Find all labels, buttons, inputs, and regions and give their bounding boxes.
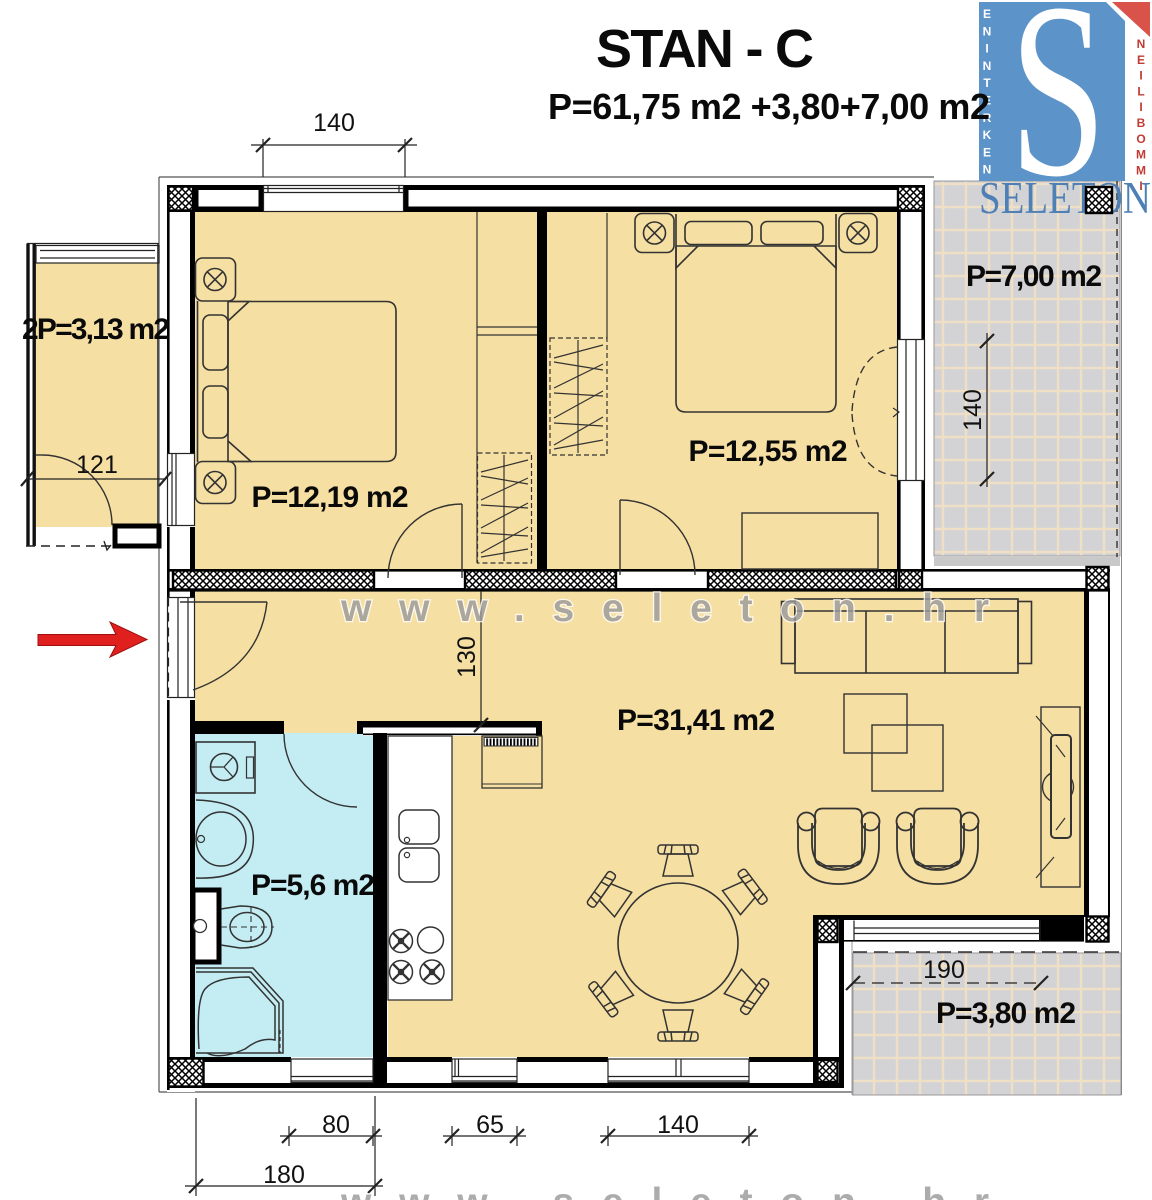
svg-text:P=5,6 m2: P=5,6 m2 — [251, 869, 375, 902]
svg-text:P=3,80 m2: P=3,80 m2 — [936, 997, 1076, 1030]
svg-text:N: N — [983, 59, 992, 73]
svg-text:E: E — [983, 7, 991, 21]
svg-text:STAN - C: STAN - C — [596, 19, 814, 79]
svg-text:P=7,00 m2: P=7,00 m2 — [966, 260, 1102, 293]
svg-text:P=61,75 m2 +3,80+7,00 m2: P=61,75 m2 +3,80+7,00 m2 — [548, 86, 990, 127]
svg-text:O: O — [1136, 132, 1145, 146]
svg-text:65: 65 — [476, 1111, 504, 1139]
svg-text:I: I — [1139, 100, 1142, 114]
svg-text:N: N — [1137, 37, 1146, 51]
svg-text:121: 121 — [76, 451, 118, 479]
svg-text:SELETON: SELETON — [979, 173, 1151, 223]
svg-text:I: I — [985, 42, 988, 56]
svg-text:I: I — [1139, 69, 1142, 83]
svg-text:K: K — [983, 128, 992, 142]
svg-text:P=12,19 m2: P=12,19 m2 — [252, 481, 409, 514]
svg-text:140: 140 — [657, 1111, 699, 1139]
svg-text:140: 140 — [959, 389, 987, 431]
svg-text:L: L — [1137, 84, 1144, 98]
svg-text:E: E — [1137, 53, 1145, 67]
svg-text:190: 190 — [923, 956, 965, 984]
svg-text:80: 80 — [322, 1111, 350, 1139]
svg-text:P=31,41 m2: P=31,41 m2 — [617, 704, 775, 737]
svg-text:140: 140 — [313, 109, 355, 137]
svg-text:M: M — [1136, 148, 1146, 162]
svg-text:130: 130 — [453, 636, 481, 678]
svg-text:B: B — [1137, 116, 1146, 130]
svg-text:N: N — [983, 24, 992, 38]
svg-text:180: 180 — [263, 1161, 305, 1189]
svg-text:P=12,55 m2: P=12,55 m2 — [689, 435, 848, 468]
svg-text:2P=3,13 m2: 2P=3,13 m2 — [22, 313, 170, 346]
svg-text:E: E — [983, 145, 991, 159]
